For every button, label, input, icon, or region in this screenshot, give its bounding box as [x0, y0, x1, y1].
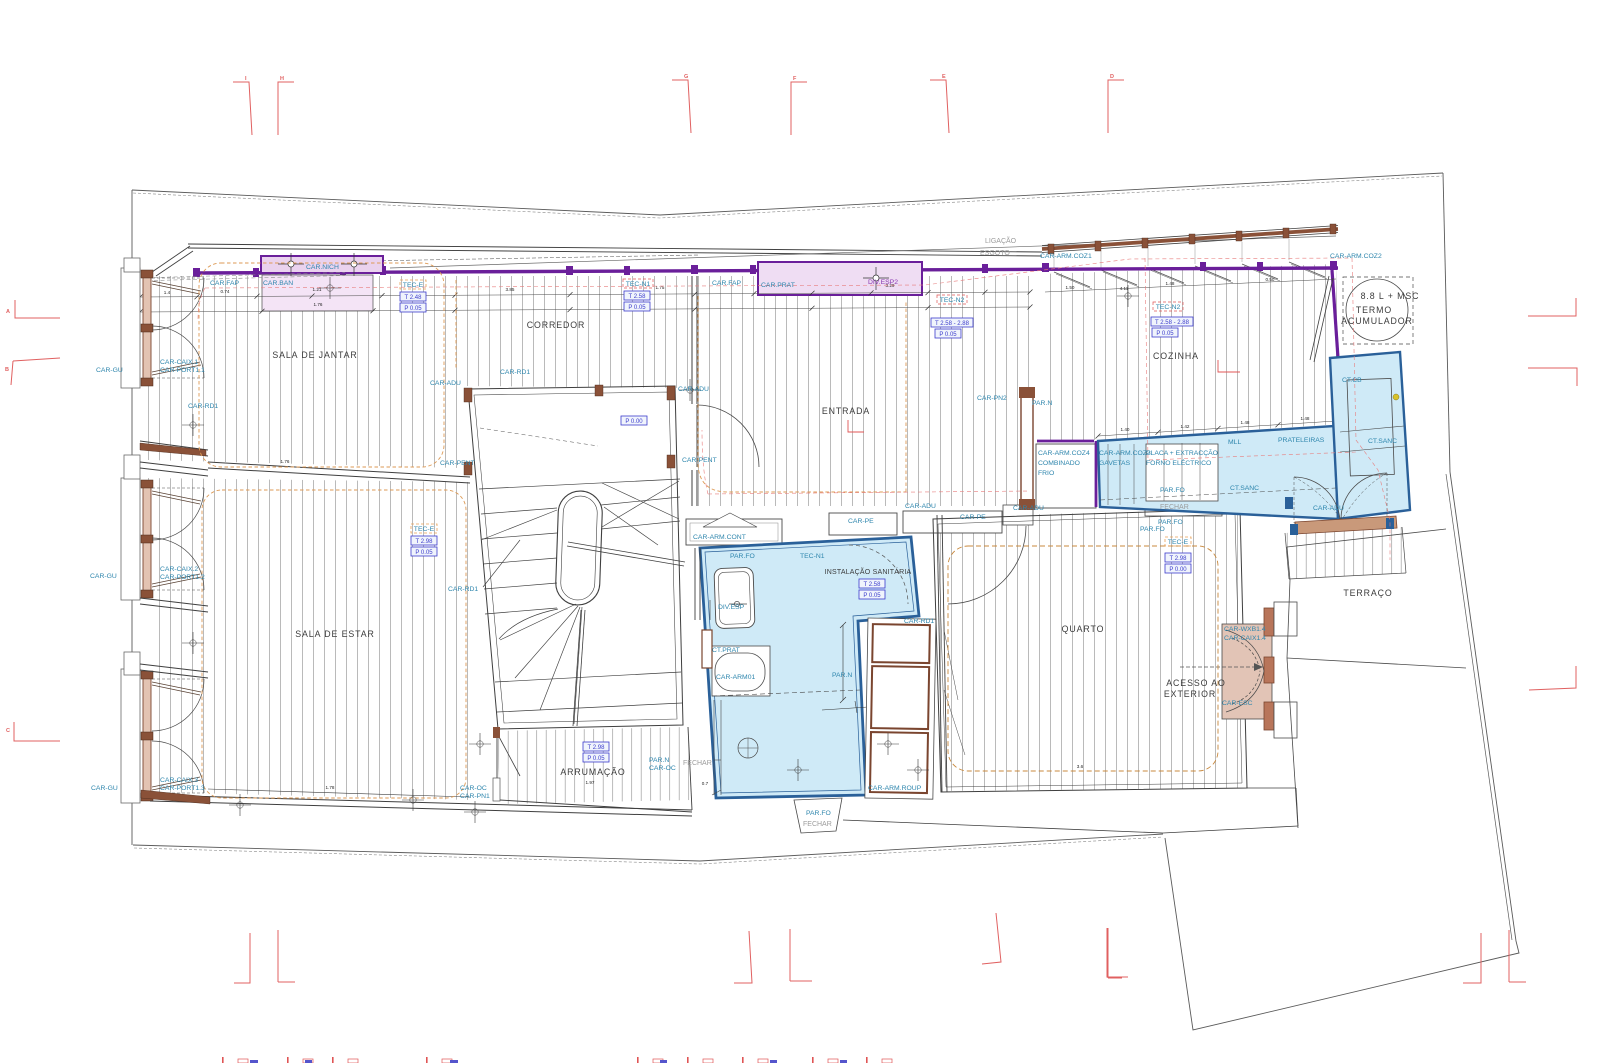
svg-text:D: D	[1110, 74, 1114, 80]
svg-text:TERMO: TERMO	[1356, 305, 1392, 315]
svg-text:CAR-PORT1.3: CAR-PORT1.3	[160, 785, 205, 792]
svg-text:CAR-RD1: CAR-RD1	[904, 618, 934, 625]
svg-text:PAR.FO: PAR.FO	[1158, 519, 1183, 526]
svg-text:PAR.FO: PAR.FO	[1160, 487, 1185, 494]
svg-text:P 0.05: P 0.05	[628, 305, 646, 311]
svg-text:3.6: 3.6	[1077, 764, 1084, 769]
svg-text:P 0.05: P 0.05	[587, 756, 605, 762]
svg-text:PAR.FO: PAR.FO	[806, 810, 831, 817]
svg-text:CAR-GU: CAR-GU	[96, 367, 123, 374]
svg-text:CAR-OC: CAR-OC	[460, 785, 487, 792]
svg-text:CAR-CAIX.2: CAR-CAIX.2	[160, 566, 198, 573]
svg-text:1.48: 1.48	[1301, 416, 1310, 421]
svg-text:PAR.FO: PAR.FO	[730, 553, 755, 560]
svg-text:CT.SANC: CT.SANC	[1230, 485, 1259, 492]
svg-text:PAR.N: PAR.N	[1032, 400, 1052, 407]
svg-text:SALA DE JANTAR: SALA DE JANTAR	[272, 350, 357, 360]
svg-text:CAR-PN1: CAR-PN1	[460, 793, 490, 800]
svg-text:CAR-PORT1.2: CAR-PORT1.2	[160, 574, 205, 581]
svg-text:PAR.N: PAR.N	[832, 672, 852, 679]
svg-text:P 0.05: P 0.05	[863, 593, 881, 599]
svg-text:T 2.98: T 2.98	[588, 745, 606, 751]
svg-text:CAR-ARM.COZ2: CAR-ARM.COZ2	[1330, 253, 1382, 260]
svg-text:CAR-ADU: CAR-ADU	[430, 380, 461, 387]
svg-text:CAR-CAIX1.4: CAR-CAIX1.4	[1224, 635, 1266, 642]
svg-text:1.97: 1.97	[586, 780, 595, 785]
svg-text:1.76: 1.76	[281, 459, 290, 464]
svg-text:P 0.05: P 0.05	[404, 306, 422, 312]
svg-text:CT.CB: CT.CB	[1342, 377, 1362, 384]
svg-text:CAR.FAP: CAR.FAP	[712, 280, 742, 287]
svg-text:CAR-PENT: CAR-PENT	[682, 457, 717, 464]
svg-text:CAR.PRAT: CAR.PRAT	[761, 282, 795, 289]
svg-text:EXTERIOR: EXTERIOR	[1164, 689, 1216, 699]
svg-text:1.76: 1.76	[314, 302, 323, 307]
svg-text:CAR-ARM.CONT: CAR-ARM.CONT	[693, 534, 746, 541]
svg-text:B: B	[5, 367, 9, 373]
svg-text:T 2.58 - 2.88: T 2.58 - 2.88	[935, 321, 970, 327]
svg-text:8.8 L + MSC: 8.8 L + MSC	[1361, 291, 1420, 301]
svg-text:CAR-GU: CAR-GU	[91, 785, 118, 792]
svg-text:H: H	[280, 76, 284, 82]
svg-text:P 0.05: P 0.05	[415, 550, 433, 556]
svg-text:TEC-N1: TEC-N1	[626, 281, 651, 288]
svg-text:DIV.ESP2: DIV.ESP2	[868, 279, 898, 286]
svg-text:C: C	[6, 728, 10, 734]
svg-text:CAR-RD1: CAR-RD1	[448, 586, 478, 593]
svg-text:FECHAR: FECHAR	[683, 760, 712, 767]
svg-text:CORREDOR: CORREDOR	[527, 320, 586, 330]
svg-text:T 2.58 - 2.88: T 2.58 - 2.88	[1155, 320, 1190, 326]
svg-text:A: A	[6, 309, 10, 315]
svg-text:P 0.00: P 0.00	[625, 419, 643, 425]
svg-text:T 2.58: T 2.58	[864, 582, 882, 588]
svg-text:CAR.FAP: CAR.FAP	[210, 280, 240, 287]
svg-text:INSTALAÇÃO SANITÁRIA: INSTALAÇÃO SANITÁRIA	[825, 567, 912, 576]
svg-text:E: E	[942, 74, 946, 80]
svg-text:FECHAR: FECHAR	[1160, 504, 1189, 511]
svg-text:COMBINADO: COMBINADO	[1038, 460, 1080, 467]
svg-text:COZINHA: COZINHA	[1153, 351, 1199, 361]
svg-text:ACUMULADOR: ACUMULADOR	[1341, 316, 1413, 326]
svg-text:CAR-PENT: CAR-PENT	[440, 460, 475, 467]
svg-text:1.42: 1.42	[1181, 424, 1190, 429]
svg-text:PRATELEIRAS: PRATELEIRAS	[1278, 437, 1325, 444]
svg-text:CAR-PE: CAR-PE	[848, 518, 874, 525]
svg-text:TEC-N1: TEC-N1	[800, 553, 825, 560]
svg-text:T 2.98: T 2.98	[1170, 556, 1188, 562]
svg-text:0.74: 0.74	[221, 289, 230, 294]
svg-text:ENTRADA: ENTRADA	[822, 406, 870, 416]
svg-text:T 2.58: T 2.58	[629, 294, 647, 300]
svg-text:SALA DE ESTAR: SALA DE ESTAR	[295, 629, 375, 639]
svg-text:ARRUMAÇÃO: ARRUMAÇÃO	[560, 767, 625, 777]
svg-text:CAR-PN2: CAR-PN2	[977, 395, 1007, 402]
svg-text:CAR-CAIX.1: CAR-CAIX.1	[160, 359, 198, 366]
svg-text:CAR-RD1: CAR-RD1	[500, 369, 530, 376]
svg-text:FORNO ELÉCTRICO: FORNO ELÉCTRICO	[1146, 458, 1211, 467]
svg-text:T 2.48: T 2.48	[405, 295, 423, 301]
svg-text:DIV.ESP: DIV.ESP	[718, 604, 745, 611]
svg-text:CT.SANC: CT.SANC	[1368, 438, 1397, 445]
svg-text:CAR-PE: CAR-PE	[960, 514, 986, 521]
svg-text:CT.PRAT: CT.PRAT	[712, 647, 740, 654]
svg-text:CAR-CAIX.3: CAR-CAIX.3	[160, 777, 198, 784]
svg-text:TERRAÇO: TERRAÇO	[1343, 588, 1392, 598]
svg-text:TEC-E: TEC-E	[414, 526, 435, 533]
svg-text:CAR-OC: CAR-OC	[649, 765, 676, 772]
svg-text:TEC-E: TEC-E	[1168, 539, 1189, 546]
svg-text:CAR-ADU: CAR-ADU	[905, 503, 936, 510]
svg-text:TEC-N2: TEC-N2	[1156, 304, 1181, 311]
svg-text:CAR.BAN: CAR.BAN	[263, 280, 293, 287]
svg-text:CAR-ADU: CAR-ADU	[678, 386, 709, 393]
svg-text:ACESSO AO: ACESSO AO	[1166, 678, 1225, 688]
svg-text:1.75: 1.75	[656, 285, 665, 290]
svg-text:T 2.98: T 2.98	[416, 539, 434, 545]
svg-text:G: G	[684, 74, 688, 80]
svg-text:QUARTO: QUARTO	[1062, 624, 1105, 634]
svg-text:1.4: 1.4	[164, 290, 171, 295]
svg-text:P 0.05: P 0.05	[939, 332, 957, 338]
svg-text:CAR-ARM01: CAR-ARM01	[716, 674, 755, 681]
svg-text:CAR-ESC: CAR-ESC	[1222, 700, 1253, 707]
svg-text:4.11: 4.11	[1120, 286, 1129, 291]
svg-text:1.50: 1.50	[1066, 285, 1075, 290]
svg-text:CAR-WXB1.4: CAR-WXB1.4	[1224, 626, 1266, 633]
svg-text:CAR-ADU: CAR-ADU	[1313, 505, 1344, 512]
svg-text:GAVETAS: GAVETAS	[1099, 460, 1131, 467]
svg-text:0.50: 0.50	[1266, 277, 1275, 282]
svg-text:CAR-PORT1.1: CAR-PORT1.1	[160, 367, 205, 374]
svg-text:1.48: 1.48	[1241, 420, 1250, 425]
svg-text:CAR-ARM.COZ4: CAR-ARM.COZ4	[1038, 450, 1090, 457]
svg-text:MLL: MLL	[1228, 439, 1241, 446]
svg-text:ESGOTO: ESGOTO	[980, 250, 1010, 257]
svg-text:CAR-ARM.COZ3: CAR-ARM.COZ3	[1099, 450, 1151, 457]
svg-text:0.7: 0.7	[702, 781, 709, 786]
svg-text:TEC-N2: TEC-N2	[940, 297, 965, 304]
svg-text:CAR.NICH: CAR.NICH	[306, 264, 339, 271]
svg-text:1.78: 1.78	[326, 785, 335, 790]
svg-text:TEC-E: TEC-E	[403, 282, 424, 289]
svg-text:PLACA + EXTRACÇÃO: PLACA + EXTRACÇÃO	[1146, 448, 1218, 457]
svg-text:LIGAÇÃO: LIGAÇÃO	[985, 236, 1017, 245]
svg-text:CAR-ARM.COZ1: CAR-ARM.COZ1	[1040, 253, 1092, 260]
svg-text:CAR-ADU: CAR-ADU	[1013, 505, 1044, 512]
svg-text:CAR-GU: CAR-GU	[90, 573, 117, 580]
svg-text:P 0.05: P 0.05	[1156, 331, 1174, 337]
svg-text:FRIO: FRIO	[1038, 470, 1054, 477]
svg-text:PAR.FO: PAR.FO	[1140, 526, 1165, 533]
svg-text:CAR-ARM.ROUP: CAR-ARM.ROUP	[868, 785, 922, 792]
svg-text:FECHAR: FECHAR	[803, 821, 832, 828]
svg-text:CAR-RD1: CAR-RD1	[188, 403, 218, 410]
svg-text:P 0.00: P 0.00	[1169, 567, 1187, 573]
svg-text:3.85: 3.85	[506, 287, 515, 292]
svg-text:PAR.N: PAR.N	[649, 757, 669, 764]
svg-text:1.48: 1.48	[1166, 281, 1175, 286]
svg-text:1.40: 1.40	[1121, 427, 1130, 432]
